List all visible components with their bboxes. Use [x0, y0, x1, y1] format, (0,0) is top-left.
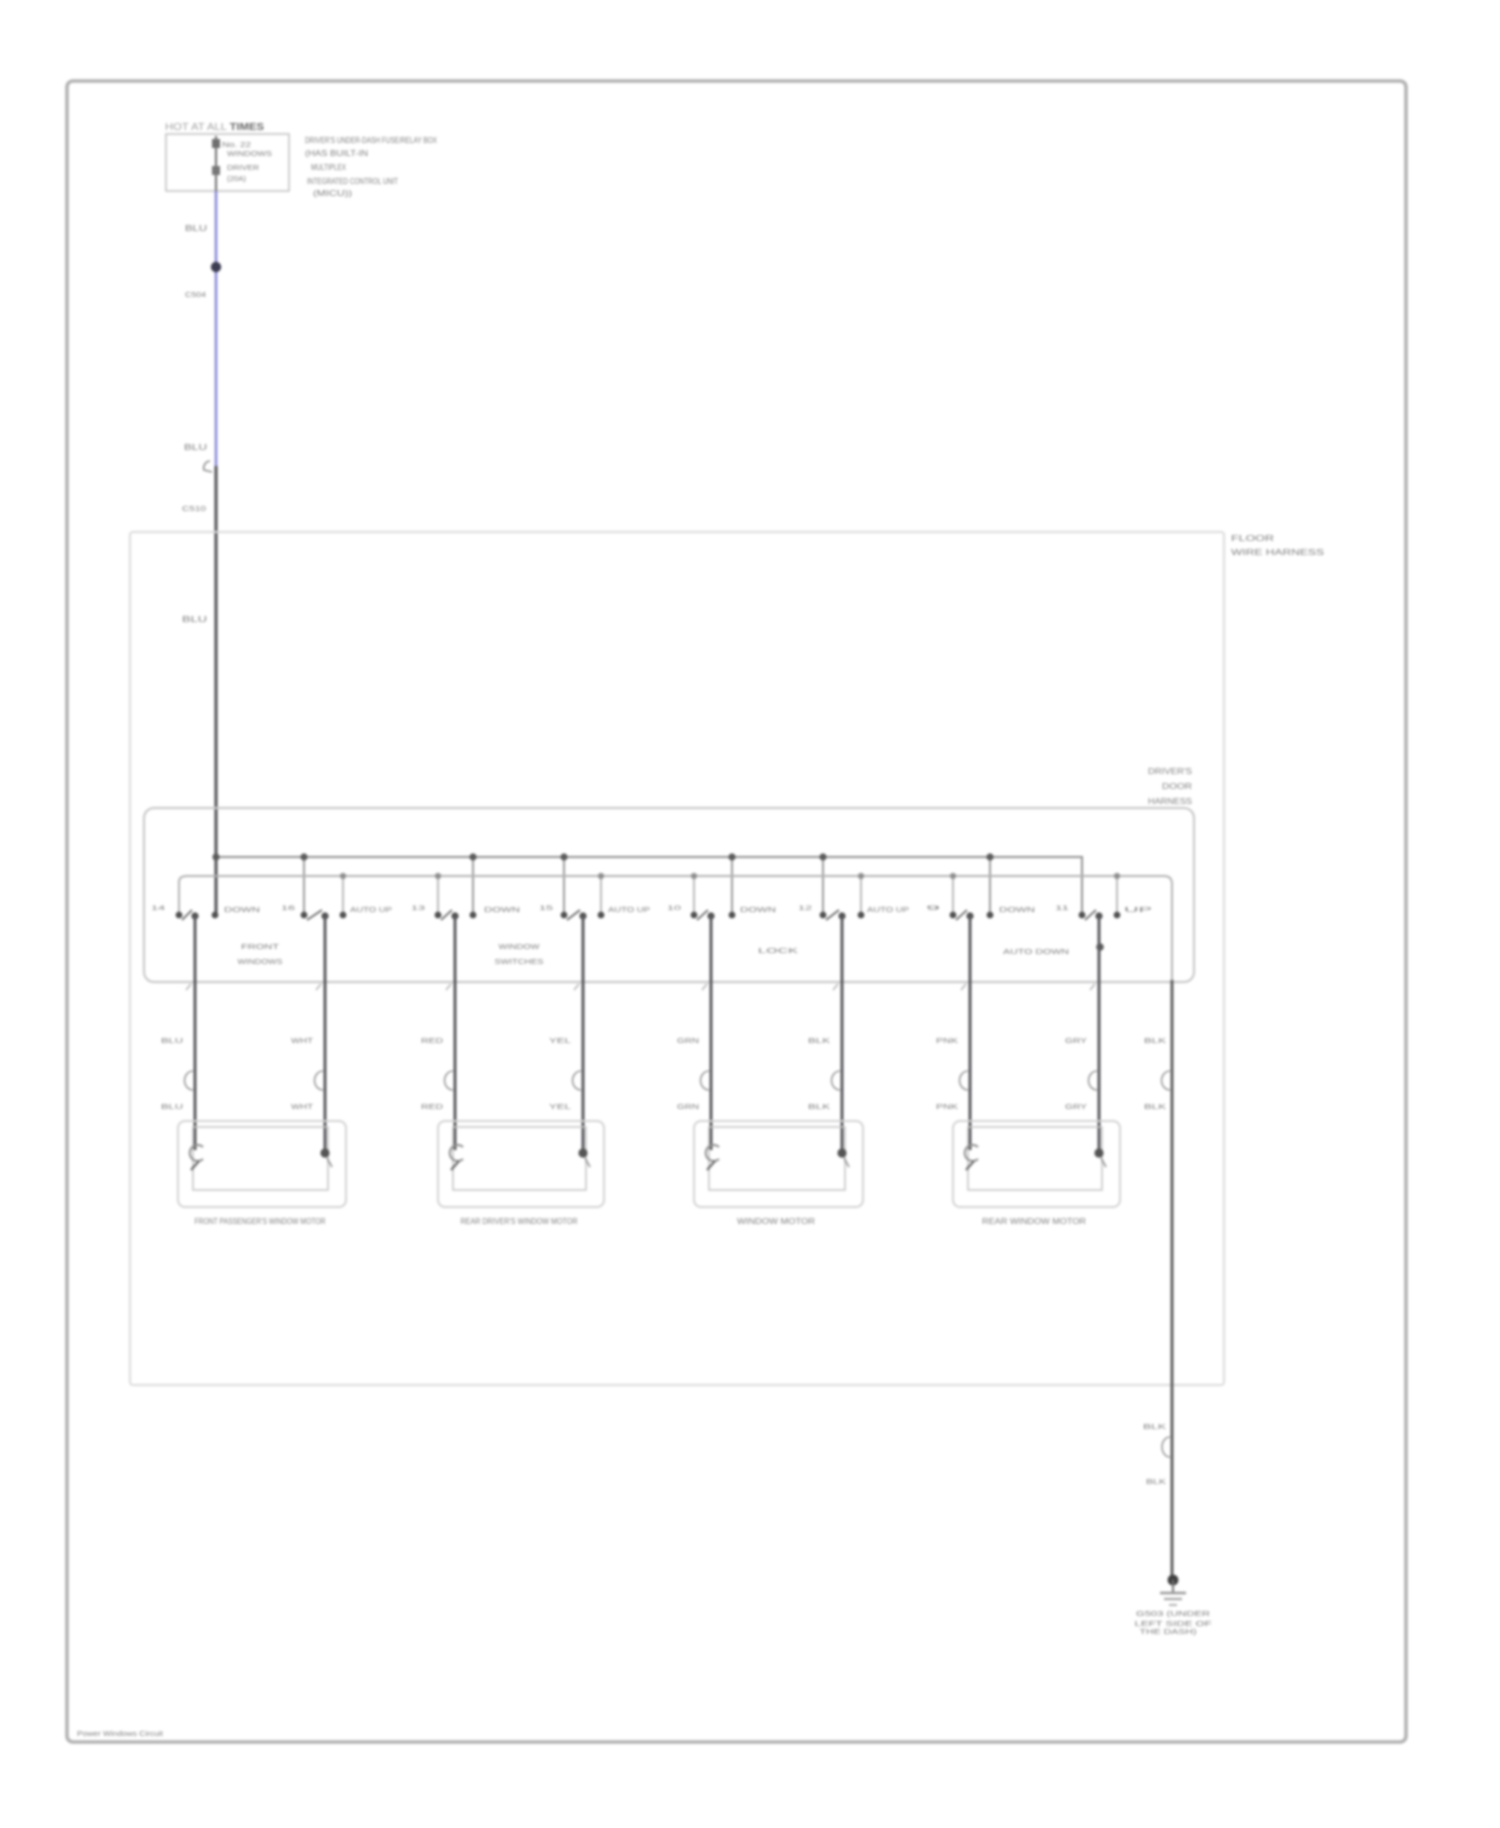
svg-text:YEL: YEL	[549, 1102, 571, 1111]
svg-text:DRIVER'S UNDER-DASH FUSE/RELAY: DRIVER'S UNDER-DASH FUSE/RELAY BOX	[305, 136, 438, 145]
svg-text:C504: C504	[185, 292, 206, 299]
svg-text:(MICU)): (MICU))	[313, 189, 352, 198]
svg-text:12: 12	[798, 905, 813, 912]
svg-text:GRN: GRN	[677, 1036, 699, 1045]
svg-text:9: 9	[926, 905, 941, 912]
svg-text:G503 (UNDER: G503 (UNDER	[1136, 1609, 1211, 1618]
svg-text:11: 11	[1055, 905, 1070, 912]
svg-text:REAR DRIVER'S WINDOW MOTOR: REAR DRIVER'S WINDOW MOTOR	[461, 1217, 578, 1226]
svg-text:HARNESS: HARNESS	[1148, 796, 1192, 806]
svg-text:AUTO UP: AUTO UP	[867, 907, 909, 914]
svg-text:UP: UP	[1124, 907, 1153, 914]
svg-text:WINDOW: WINDOW	[499, 942, 541, 951]
svg-text:No. 22: No. 22	[222, 140, 251, 149]
svg-text:RED: RED	[421, 1102, 444, 1111]
svg-text:FRONT PASSENGER'S WINDOW MOTOR: FRONT PASSENGER'S WINDOW MOTOR	[195, 1217, 326, 1226]
svg-text:BLK: BLK	[1146, 1477, 1166, 1486]
svg-text:BLU: BLU	[182, 615, 207, 624]
svg-text:INTEGRATED CONTROL UNIT: INTEGRATED CONTROL UNIT	[307, 177, 398, 186]
svg-text:FRONT: FRONT	[241, 942, 280, 951]
svg-text:BLK: BLK	[808, 1102, 830, 1111]
svg-text:SWITCHES: SWITCHES	[495, 957, 544, 966]
svg-text:WIRE HARNESS: WIRE HARNESS	[1231, 548, 1324, 557]
svg-text:10: 10	[667, 905, 682, 912]
svg-text:BLK: BLK	[808, 1036, 830, 1045]
svg-text:16: 16	[281, 905, 296, 912]
svg-text:13: 13	[411, 905, 426, 912]
svg-text:BLU: BLU	[161, 1102, 183, 1111]
svg-text:GRN: GRN	[677, 1102, 699, 1111]
svg-text:HOT AT ALL TIMES: HOT AT ALL TIMES	[165, 122, 264, 133]
svg-text:WINDOW MOTOR: WINDOW MOTOR	[737, 1217, 815, 1226]
svg-text:BLK: BLK	[1144, 1102, 1166, 1111]
svg-text:LOCK: LOCK	[758, 946, 798, 955]
svg-text:PNK: PNK	[936, 1036, 958, 1045]
svg-text:WHT: WHT	[291, 1102, 314, 1111]
svg-text:WINDOWS: WINDOWS	[227, 149, 272, 158]
svg-text:DOWN: DOWN	[224, 907, 260, 914]
svg-text:DOWN: DOWN	[484, 907, 520, 914]
svg-text:BLU: BLU	[161, 1036, 183, 1045]
svg-text:(HAS BUILT-IN: (HAS BUILT-IN	[305, 149, 368, 158]
svg-text:WHT: WHT	[291, 1036, 314, 1045]
svg-text:GRY: GRY	[1065, 1036, 1087, 1045]
svg-text:AUTO UP: AUTO UP	[350, 907, 392, 914]
svg-text:RED: RED	[421, 1036, 444, 1045]
svg-text:15: 15	[539, 905, 554, 912]
svg-text:BLU: BLU	[184, 443, 207, 452]
svg-text:BLK: BLK	[1143, 1422, 1166, 1431]
svg-text:AUTO UP: AUTO UP	[608, 907, 650, 914]
svg-text:YEL: YEL	[549, 1036, 571, 1045]
svg-text:FLOOR: FLOOR	[1231, 534, 1274, 543]
svg-text:DOOR: DOOR	[1162, 781, 1192, 791]
svg-text:GRY: GRY	[1065, 1102, 1087, 1111]
svg-text:Power Windows Circuit: Power Windows Circuit	[77, 1729, 164, 1738]
svg-text:DRIVER: DRIVER	[227, 163, 260, 172]
svg-text:DRIVER'S: DRIVER'S	[1148, 766, 1192, 776]
svg-text:BLU: BLU	[185, 224, 207, 233]
svg-text:14: 14	[151, 905, 166, 912]
svg-text:DOWN: DOWN	[999, 907, 1035, 914]
svg-text:REAR WINDOW MOTOR: REAR WINDOW MOTOR	[982, 1217, 1086, 1226]
svg-text:C510: C510	[182, 506, 206, 513]
svg-text:PNK: PNK	[936, 1102, 958, 1111]
svg-text:THE DASH): THE DASH)	[1140, 1627, 1198, 1636]
svg-text:WINDOWS: WINDOWS	[238, 957, 283, 966]
svg-text:BLK: BLK	[1144, 1036, 1166, 1045]
svg-text:DOWN: DOWN	[740, 907, 776, 914]
svg-text:(20A): (20A)	[227, 174, 247, 183]
svg-text:MULTIPLEX: MULTIPLEX	[311, 163, 347, 172]
svg-text:AUTO DOWN: AUTO DOWN	[1003, 947, 1069, 956]
